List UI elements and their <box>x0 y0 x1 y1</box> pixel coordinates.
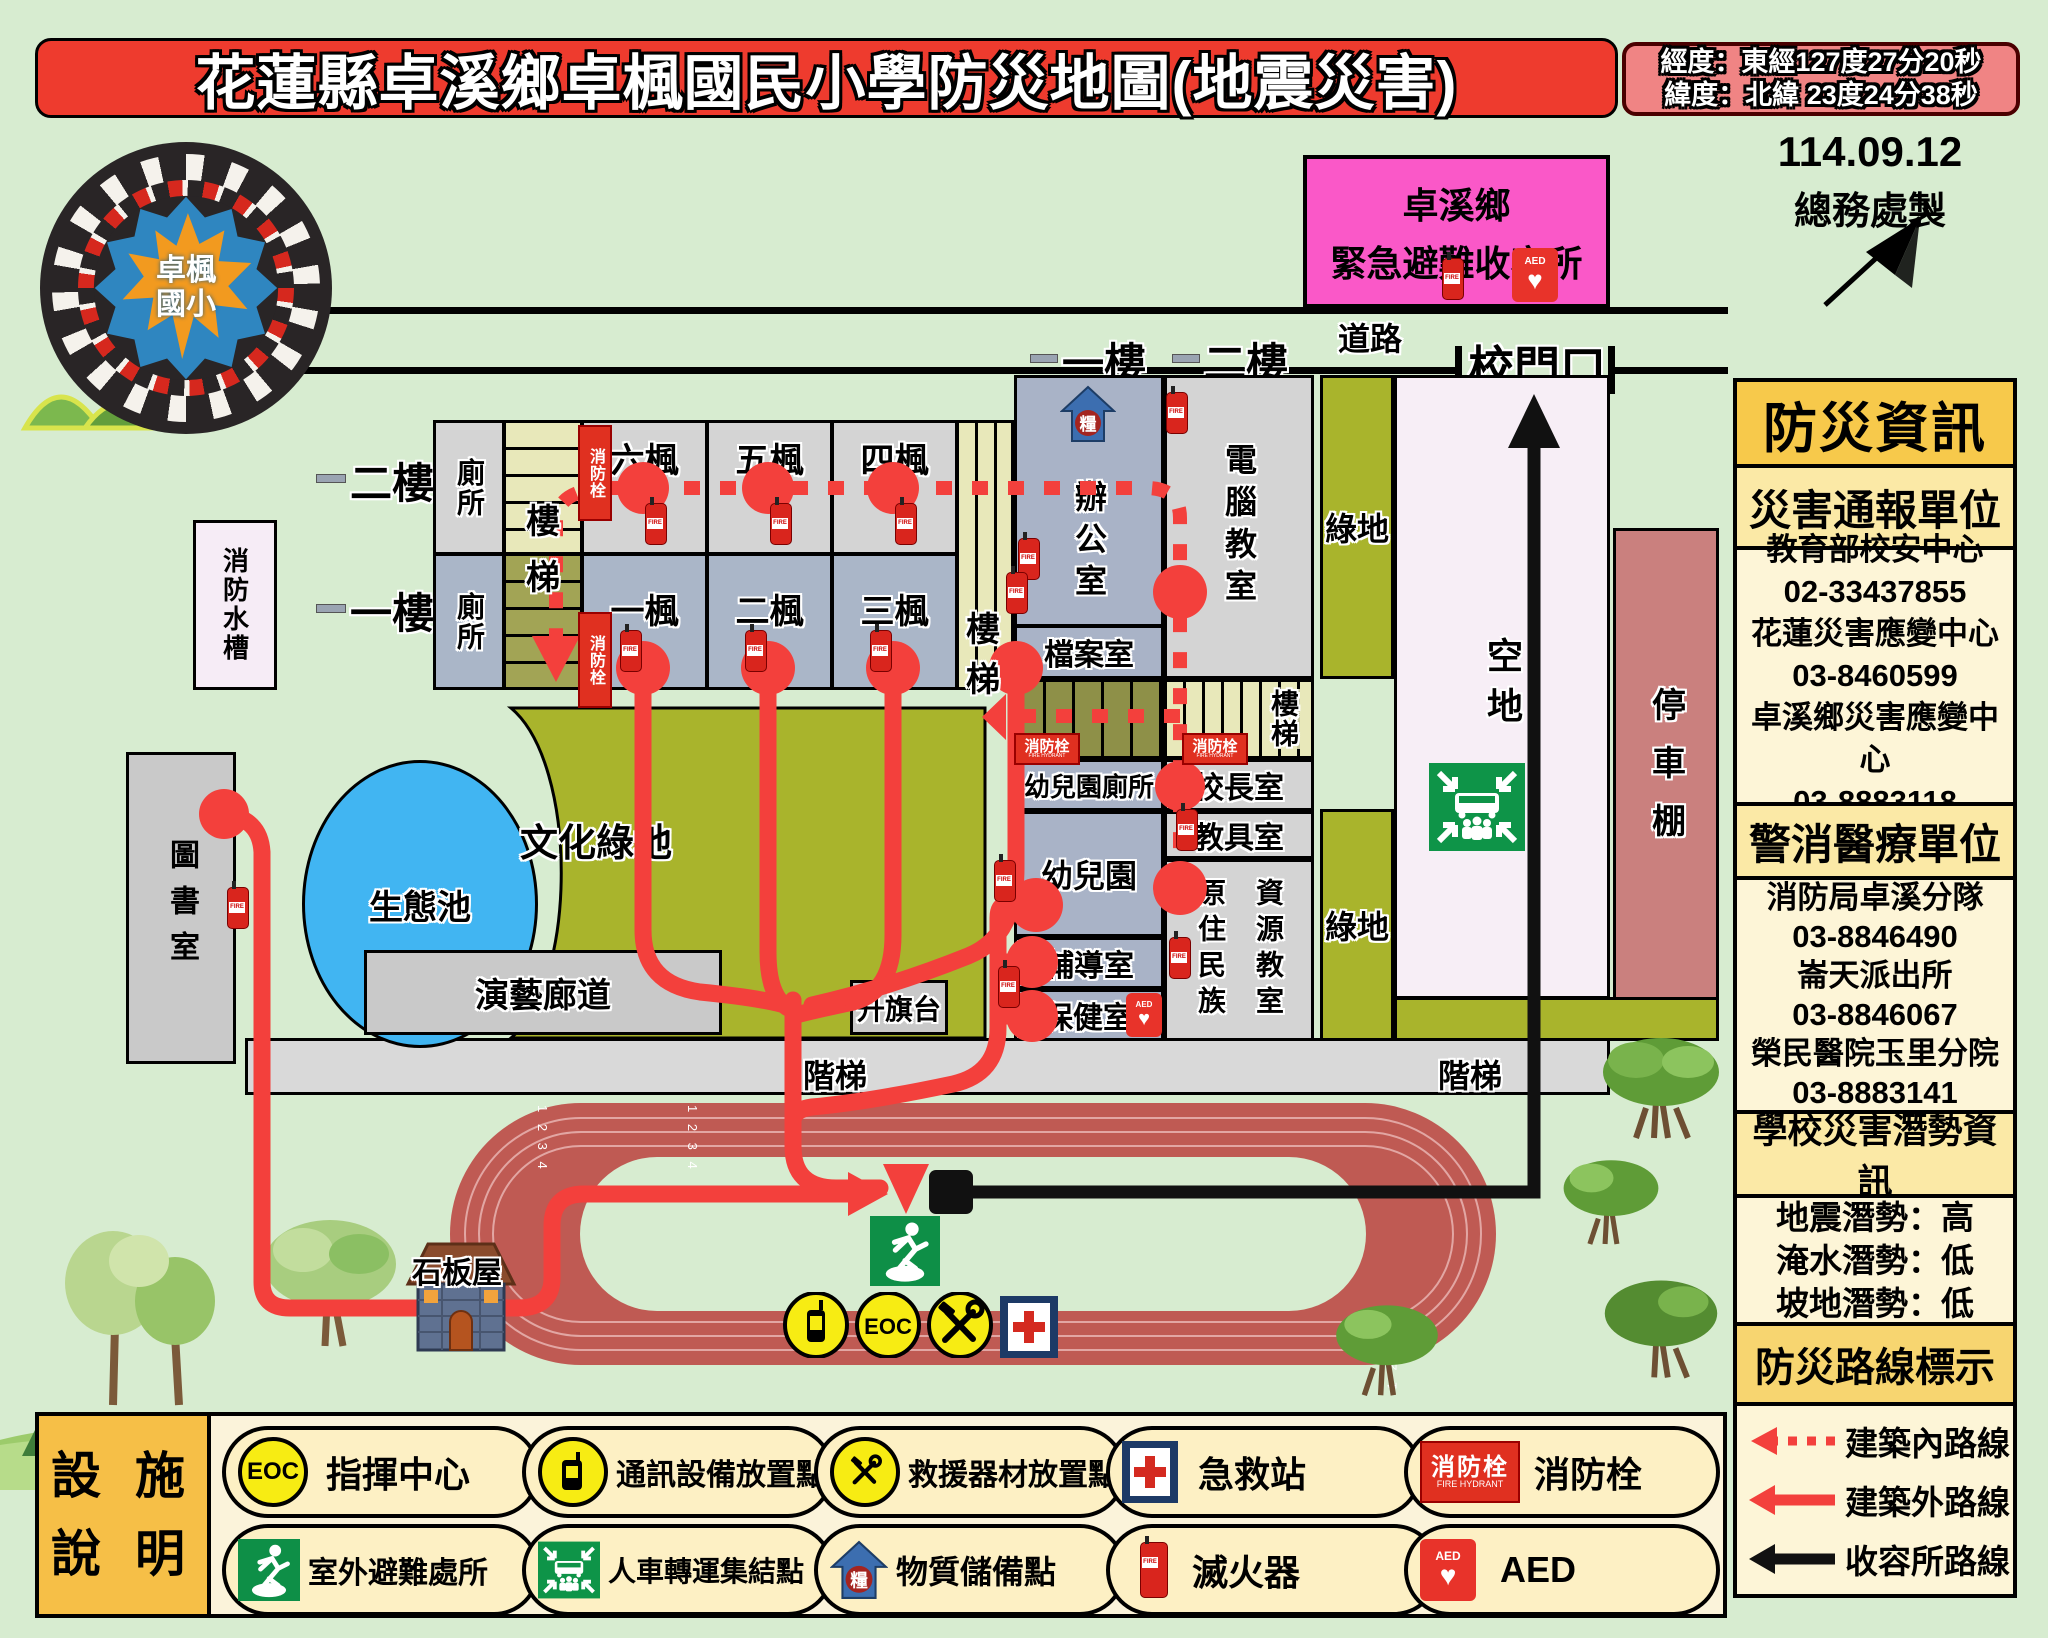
legend-outdoor-refuge: 室外避難處所 <box>222 1524 540 1616</box>
fire-extinguisher-icon <box>620 630 642 672</box>
sidebar-report-units: 教育部校安中心02-33437855 花蓮災害應變中心03-8460599 卓溪… <box>1733 546 2017 806</box>
stair-label-ti-left: 梯 <box>526 550 560 599</box>
steps-strip: 階梯 階梯 <box>245 1038 1610 1095</box>
logo-text: 卓楓 國小 <box>40 142 332 434</box>
tools-icon <box>830 1437 900 1507</box>
supply-icon: 糧 <box>830 1540 888 1600</box>
fire-extinguisher-icon <box>994 860 1016 902</box>
sidebar-potential: 地震潛勢：高 淹水潛勢：低 坡地潛勢：低 <box>1733 1194 2017 1326</box>
fire-extinguisher-icon <box>770 503 792 545</box>
svg-text:EOC: EOC <box>864 1314 912 1339</box>
tree-icon <box>1596 1030 1726 1142</box>
runner-icon <box>238 1537 300 1603</box>
first-aid-icon <box>1122 1441 1178 1503</box>
fire-hydrant-sign: 消防栓 <box>578 425 612 521</box>
culture-green-label: 文化綠地 <box>520 812 672 867</box>
tree-icon <box>1598 1268 1724 1386</box>
route-legend-outside: 建築外路線 <box>1737 1476 2013 1524</box>
supply-point-icon: 糧 <box>1060 385 1116 443</box>
legend-hydrant: 消防栓 FIRE HYDRANT 消防栓 <box>1404 1426 1720 1518</box>
fire-extinguisher-icon <box>645 503 667 545</box>
fire-extinguisher-icon <box>1169 937 1191 979</box>
sidebar-police-units: 消防局卓溪分隊03-8846490 崙天派出所03-8846067 榮民醫院玉里… <box>1733 876 2017 1114</box>
fire-extinguisher-icon <box>1006 572 1028 614</box>
eoc-icon: EOC <box>855 1292 921 1358</box>
assembly-icon <box>538 1538 600 1602</box>
svg-text:糧: 糧 <box>850 1571 868 1591</box>
sidebar-header-potential: 學校災害潛勢資訊 <box>1733 1110 2017 1198</box>
stone-house: 石板屋 <box>398 1238 524 1354</box>
aed-icon: AED ♥ <box>1126 993 1162 1037</box>
assembly-point-icon <box>1429 763 1525 851</box>
lane-numbers: 1 2 3 4 <box>535 1105 550 1173</box>
legend-rescue-tools: 救援器材放置點 <box>814 1426 1126 1518</box>
stair-label-lou-left: 樓 <box>526 494 560 543</box>
lane-numbers: 1 2 3 4 <box>685 1105 700 1173</box>
route-legend-shelter: 收容所路線 <box>1737 1535 2013 1583</box>
legend-supply: 糧 物質儲備點 <box>814 1524 1126 1616</box>
tree-icon <box>1328 1292 1446 1404</box>
sidebar-title: 防災資訊 <box>1733 378 2017 468</box>
stone-house-label: 石板屋 <box>412 1248 502 1292</box>
compass-icon: N <box>1800 200 1950 320</box>
fire-extinguisher-icon <box>998 966 1020 1008</box>
school-logo: 卓楓 國小 <box>40 142 332 434</box>
facility-legend-header: 設 施 說 明 <box>39 1416 211 1614</box>
rescue-tools-icon <box>927 1292 993 1358</box>
outdoor-refuge-icon <box>870 1216 940 1286</box>
fire-extinguisher-icon <box>1176 809 1198 851</box>
fire-extinguisher-icon <box>895 503 917 545</box>
phone-icon <box>538 1437 608 1507</box>
aed-icon: AED ♥ <box>1512 248 1558 302</box>
legend-first-aid: 急救站 <box>1106 1426 1422 1518</box>
fire-extinguisher-icon <box>1140 1542 1168 1598</box>
comms-point-icon <box>783 1292 849 1358</box>
flag-platform: 升旗台 <box>850 980 948 1035</box>
eoc-icon: EOC <box>238 1437 308 1507</box>
legend-aed: AED ♥ AED <box>1404 1524 1720 1616</box>
legend-comms: 通訊設備放置點 <box>522 1426 834 1518</box>
legend-eoc: EOC 指揮中心 <box>222 1426 540 1518</box>
fire-hydrant-sign: 消防栓 FIRE HYDRANT <box>1420 1441 1520 1503</box>
aed-icon: AED ♥ <box>1420 1539 1476 1601</box>
legend-extinguisher: 滅火器 <box>1106 1524 1440 1616</box>
tree-icon <box>1556 1150 1666 1250</box>
fire-hydrant-sign: 消防栓 FIRE HYDRANT <box>1182 733 1248 765</box>
stair-label-ti-right: 梯 <box>966 652 1000 701</box>
stair-label-lou-right: 樓 <box>966 602 1000 651</box>
fire-extinguisher-icon <box>1166 392 1188 434</box>
fire-hydrant-sign: 消防栓 FIRE HYDRANT <box>1014 733 1080 765</box>
fire-extinguisher-icon <box>870 630 892 672</box>
disaster-map-poster: 花蓮縣卓溪鄉卓楓國民小學防災地圖(地震災害) 經度：東經127度27分20秒 緯… <box>0 0 2048 1638</box>
fire-hydrant-sign: 消防栓 <box>578 612 612 708</box>
fire-extinguisher-icon <box>1442 258 1464 300</box>
svg-text:N: N <box>1922 200 1938 221</box>
sidebar-header-routes: 防災路線標示 <box>1733 1322 2017 1406</box>
first-aid-icon <box>1000 1296 1058 1358</box>
legend-assembly: 人車轉運集結點 <box>522 1524 834 1616</box>
svg-text:糧: 糧 <box>1080 414 1097 434</box>
tree-icon <box>255 1212 405 1352</box>
performance-gallery: 演藝廊道 <box>364 950 722 1035</box>
route-legend-inside: 建築內路線 <box>1737 1417 2013 1465</box>
track-infield <box>580 1157 1366 1311</box>
sidebar-header-police: 警消醫療單位 <box>1733 802 2017 880</box>
fire-extinguisher-icon <box>745 630 767 672</box>
sidebar-route-legend: 建築內路線 建築外路線 收容所路線 <box>1733 1402 2017 1598</box>
fire-extinguisher-icon <box>227 887 249 929</box>
